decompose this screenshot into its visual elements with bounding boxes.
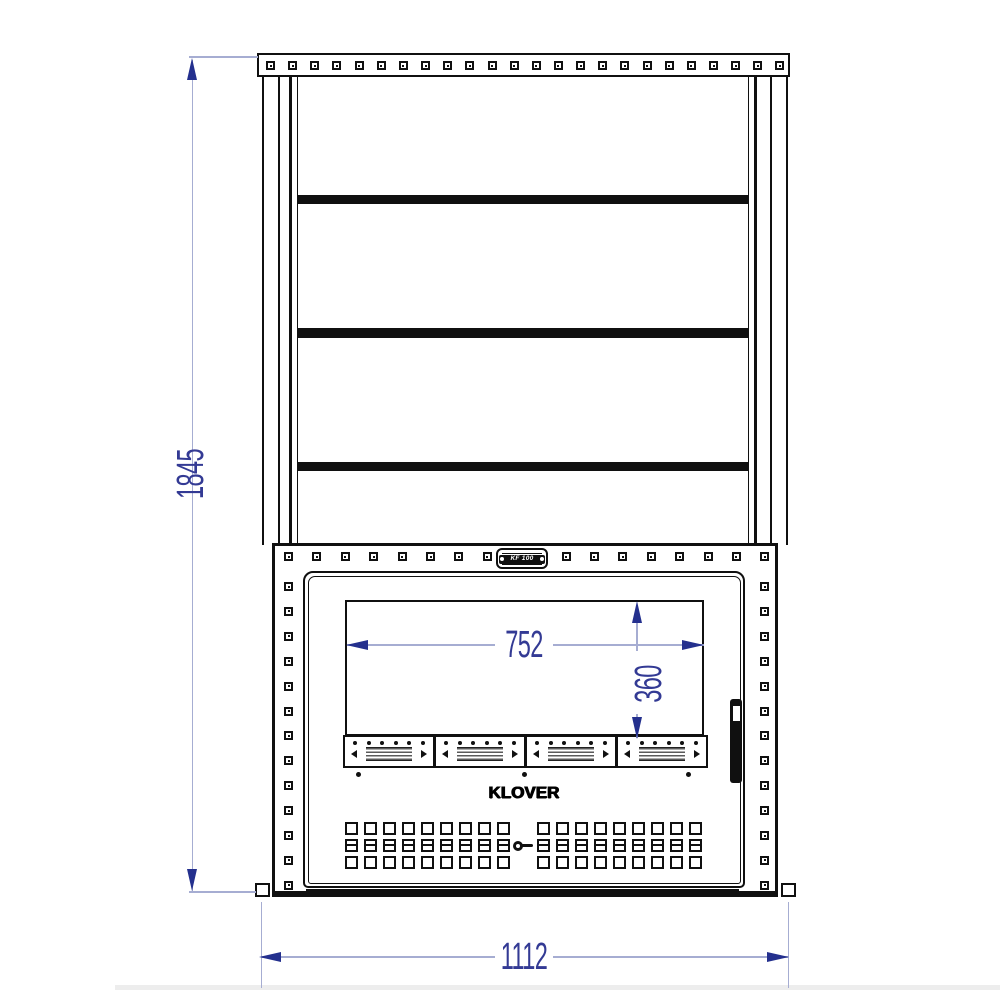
right-inner-post bbox=[748, 75, 757, 545]
vent-dot-icon bbox=[603, 741, 607, 745]
vent-dot-icon bbox=[535, 741, 539, 745]
vent-dot-icon bbox=[498, 741, 502, 745]
vent-dot-icon bbox=[458, 741, 462, 745]
dimension-arrow-up-icon bbox=[187, 58, 197, 80]
bolt-icon bbox=[284, 552, 293, 561]
dimension-arrow-right-icon bbox=[767, 952, 789, 962]
bolt-icon bbox=[454, 552, 463, 561]
bolt-icon bbox=[687, 61, 696, 70]
dimension-arrow-left-icon bbox=[346, 640, 368, 650]
vent-hole bbox=[478, 856, 491, 869]
vent-hole bbox=[632, 822, 645, 835]
vent-hole bbox=[345, 839, 358, 852]
vent-dot-row bbox=[436, 737, 524, 745]
vent-hole bbox=[575, 839, 588, 852]
right-foot bbox=[781, 883, 796, 897]
bolt-icon bbox=[443, 61, 452, 70]
vent-hole bbox=[594, 839, 607, 852]
vent-arrow-right-icon bbox=[421, 750, 427, 758]
bolt-icon bbox=[760, 881, 769, 890]
bolt-icon bbox=[284, 856, 293, 865]
left-inner-post bbox=[289, 75, 298, 545]
vent-slider bbox=[639, 747, 685, 761]
vent-hole bbox=[459, 856, 472, 869]
bolt-icon bbox=[284, 731, 293, 740]
bolt-icon bbox=[775, 61, 784, 70]
extension-line bbox=[261, 902, 263, 988]
vent-hole bbox=[402, 822, 415, 835]
vent-hole bbox=[402, 856, 415, 869]
vent-dot-icon bbox=[512, 741, 516, 745]
bolt-icon bbox=[284, 707, 293, 716]
vent-slider bbox=[366, 747, 412, 761]
vent-dot-icon bbox=[549, 741, 553, 745]
vent-hole bbox=[613, 839, 626, 852]
bolt-icon bbox=[675, 552, 684, 561]
vent-hole bbox=[670, 856, 683, 869]
bolt-icon bbox=[760, 682, 769, 691]
bolt-icon bbox=[284, 657, 293, 666]
vent-control-row bbox=[345, 747, 433, 761]
vent-arrow-right-icon bbox=[603, 750, 609, 758]
vent-hole-grid-left bbox=[345, 822, 510, 869]
vent-hole bbox=[537, 856, 550, 869]
dimension-arrow-up-icon bbox=[632, 601, 642, 623]
bolt-icon bbox=[266, 61, 275, 70]
right-outer-post bbox=[770, 75, 788, 545]
bolt-icon bbox=[377, 61, 386, 70]
vent-dot-icon bbox=[380, 741, 384, 745]
bolt-icon bbox=[465, 61, 474, 70]
bolt-icon bbox=[369, 552, 378, 561]
vent-dot-icon bbox=[471, 741, 475, 745]
key-icon bbox=[513, 839, 537, 853]
vent-hole bbox=[421, 839, 434, 852]
bolt-icon bbox=[310, 61, 319, 70]
dimension-label-overall-width: 1112 bbox=[487, 937, 561, 977]
vent-hole bbox=[497, 822, 510, 835]
brand-logo: KLOVER bbox=[424, 783, 624, 803]
extension-line bbox=[189, 56, 258, 58]
screw-icon bbox=[686, 772, 691, 777]
bolt-icon bbox=[731, 61, 740, 70]
dimension-line-width bbox=[553, 956, 789, 958]
vent-hole bbox=[651, 822, 664, 835]
screw-icon bbox=[356, 772, 361, 777]
bolt-icon bbox=[332, 61, 341, 70]
vent-hole bbox=[670, 839, 683, 852]
vent-dot-icon bbox=[485, 741, 489, 745]
vent-dot-icon bbox=[626, 741, 630, 745]
vent-hole bbox=[459, 839, 472, 852]
bolt-icon bbox=[647, 552, 656, 561]
bolt-icon bbox=[665, 61, 674, 70]
vent-slider bbox=[457, 747, 503, 761]
vent-hole bbox=[345, 822, 358, 835]
key-stem bbox=[522, 844, 533, 847]
vent-arrow-left-icon bbox=[442, 750, 448, 758]
vent-arrow-left-icon bbox=[624, 750, 630, 758]
bolt-icon bbox=[598, 61, 607, 70]
vent-hole bbox=[632, 856, 645, 869]
vent-hole bbox=[440, 856, 453, 869]
vent-hole bbox=[556, 822, 569, 835]
bolt-icon bbox=[760, 806, 769, 815]
extension-line bbox=[189, 891, 256, 893]
vent-hole bbox=[478, 839, 491, 852]
bolt-icon bbox=[312, 552, 321, 561]
vent-hole bbox=[689, 822, 702, 835]
bolt-icon bbox=[510, 61, 519, 70]
bolt-icon bbox=[753, 61, 762, 70]
vent-dot-icon bbox=[367, 741, 371, 745]
vent-hole bbox=[670, 822, 683, 835]
vent-dot-icon bbox=[394, 741, 398, 745]
page-bottom-edge bbox=[115, 985, 1000, 990]
badge-top-line bbox=[502, 553, 542, 554]
vent-dot-icon bbox=[653, 741, 657, 745]
vent-hole bbox=[440, 839, 453, 852]
vent-hole bbox=[402, 839, 415, 852]
dimension-label-glass-height: 360 bbox=[618, 647, 680, 721]
bolt-icon bbox=[620, 61, 629, 70]
vent-dot-icon bbox=[421, 741, 425, 745]
vent-hole bbox=[632, 839, 645, 852]
vent-hole bbox=[497, 839, 510, 852]
dimension-arrow-down-icon bbox=[187, 869, 197, 891]
vent-hole bbox=[689, 856, 702, 869]
vent-hole bbox=[537, 822, 550, 835]
vent-hole bbox=[556, 856, 569, 869]
vent-arrow-left-icon bbox=[533, 750, 539, 758]
bolt-icon bbox=[760, 831, 769, 840]
bolt-icon bbox=[704, 552, 713, 561]
vent-hole bbox=[613, 822, 626, 835]
bolt-icon bbox=[760, 731, 769, 740]
bolt-icon bbox=[732, 552, 741, 561]
vent-dot-row bbox=[345, 737, 433, 745]
bolt-icon bbox=[760, 552, 769, 561]
vent-hole bbox=[459, 822, 472, 835]
vent-dot-icon bbox=[589, 741, 593, 745]
vent-arrow-right-icon bbox=[694, 750, 700, 758]
bolt-icon bbox=[562, 552, 571, 561]
bolt-icon bbox=[760, 856, 769, 865]
vent-hole bbox=[689, 839, 702, 852]
left-outer-post bbox=[262, 75, 280, 545]
vent-control-row bbox=[436, 747, 524, 761]
bolt-icon bbox=[341, 552, 350, 561]
vent-control-row bbox=[527, 747, 615, 761]
bolt-icon bbox=[421, 61, 430, 70]
vent-arrow-left-icon bbox=[351, 750, 357, 758]
vent-hole bbox=[383, 839, 396, 852]
bolt-icon bbox=[426, 552, 435, 561]
extension-line bbox=[788, 902, 790, 988]
bolt-icon bbox=[643, 61, 652, 70]
vent-hole bbox=[537, 839, 550, 852]
bolt-icon bbox=[398, 552, 407, 561]
vent-hole-grid-right bbox=[537, 822, 702, 869]
bolt-icon bbox=[709, 61, 718, 70]
door-handle bbox=[730, 699, 742, 783]
bolt-icon bbox=[284, 806, 293, 815]
vent-hole bbox=[556, 839, 569, 852]
vent-slider bbox=[548, 747, 594, 761]
bolt-icon bbox=[760, 607, 769, 616]
air-vent-module bbox=[616, 735, 708, 768]
bolt-icon bbox=[554, 61, 563, 70]
bolt-icon bbox=[618, 552, 627, 561]
bolt-icon bbox=[284, 632, 293, 641]
vent-hole bbox=[364, 856, 377, 869]
dimension-arrow-left-icon bbox=[259, 952, 281, 962]
vent-hole bbox=[478, 822, 491, 835]
bolt-icon bbox=[760, 707, 769, 716]
vent-hole bbox=[594, 856, 607, 869]
dimension-line-glass-width bbox=[347, 644, 495, 646]
air-vent-module bbox=[434, 735, 526, 768]
shelf-bar bbox=[298, 462, 748, 471]
vent-hole bbox=[575, 856, 588, 869]
vent-dot-icon bbox=[576, 741, 580, 745]
bolt-icon bbox=[288, 61, 297, 70]
vent-hole bbox=[594, 822, 607, 835]
bolt-icon bbox=[399, 61, 408, 70]
badge-text: KF 100 bbox=[499, 555, 545, 564]
dimension-line-width bbox=[262, 956, 495, 958]
vent-dot-icon bbox=[667, 741, 671, 745]
vent-hole bbox=[440, 822, 453, 835]
bolt-icon bbox=[284, 881, 293, 890]
bolt-icon bbox=[284, 682, 293, 691]
vent-dot-icon bbox=[444, 741, 448, 745]
shelf-bar bbox=[298, 195, 748, 204]
vent-dot-icon bbox=[353, 741, 357, 745]
screw-icon bbox=[522, 772, 527, 777]
vent-hole bbox=[651, 839, 664, 852]
vent-arrow-right-icon bbox=[512, 750, 518, 758]
shelf-bar bbox=[298, 328, 748, 338]
vent-hole bbox=[613, 856, 626, 869]
left-foot bbox=[255, 883, 270, 897]
bolt-icon bbox=[355, 61, 364, 70]
bolt-icon bbox=[483, 552, 492, 561]
vent-hole bbox=[497, 856, 510, 869]
bolt-icon bbox=[576, 61, 585, 70]
bolt-icon bbox=[284, 582, 293, 591]
bolt-icon bbox=[284, 831, 293, 840]
vent-hole bbox=[421, 822, 434, 835]
vent-hole bbox=[421, 856, 434, 869]
bolt-icon bbox=[760, 632, 769, 641]
vent-hole bbox=[345, 856, 358, 869]
bolt-icon bbox=[284, 607, 293, 616]
bolt-icon bbox=[488, 61, 497, 70]
vent-control-row bbox=[618, 747, 706, 761]
dimension-label-overall-height: 1845 bbox=[159, 437, 223, 511]
vent-dot-icon bbox=[694, 741, 698, 745]
technical-drawing-canvas: KF 100 KLOVER 1845 752 360 1112 bbox=[0, 0, 1000, 1000]
vent-dot-icon bbox=[680, 741, 684, 745]
bolt-icon bbox=[284, 756, 293, 765]
nameplate-badge: KF 100 bbox=[496, 548, 548, 569]
bolt-icon bbox=[760, 582, 769, 591]
dimension-label-glass-width: 752 bbox=[487, 627, 561, 663]
vent-dot-icon bbox=[562, 741, 566, 745]
vent-hole bbox=[364, 839, 377, 852]
vent-dot-icon bbox=[640, 741, 644, 745]
bolt-icon bbox=[760, 756, 769, 765]
badge-bottom-line bbox=[502, 564, 542, 565]
vent-hole bbox=[651, 856, 664, 869]
dimension-arrow-right-icon bbox=[682, 640, 704, 650]
air-vent-module bbox=[343, 735, 435, 768]
bolt-icon bbox=[284, 781, 293, 790]
door-bottom-sill bbox=[306, 889, 739, 896]
vent-hole bbox=[383, 822, 396, 835]
bolt-icon bbox=[760, 657, 769, 666]
air-vent-module bbox=[525, 735, 617, 768]
vent-dot-row bbox=[527, 737, 615, 745]
bolt-icon bbox=[760, 781, 769, 790]
bolt-icon bbox=[532, 61, 541, 70]
vent-hole bbox=[575, 822, 588, 835]
vent-hole bbox=[383, 856, 396, 869]
vent-dot-icon bbox=[407, 741, 411, 745]
bolt-icon bbox=[590, 552, 599, 561]
vent-hole bbox=[364, 822, 377, 835]
